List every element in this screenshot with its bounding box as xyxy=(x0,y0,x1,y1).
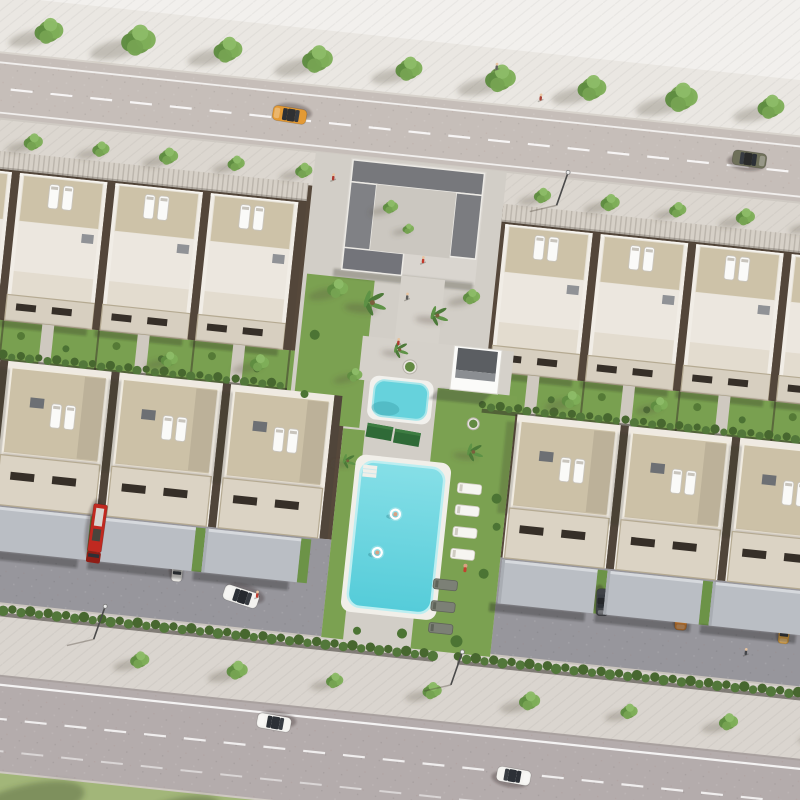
ac-unit xyxy=(762,474,777,485)
ac-unit xyxy=(141,409,156,420)
roof-terrace-tan xyxy=(504,226,588,280)
roof-terrace-tan xyxy=(210,196,294,250)
aerial-render-image xyxy=(0,0,800,800)
pool-steps xyxy=(362,465,377,478)
scene-svg xyxy=(0,0,800,800)
car-roof xyxy=(743,152,753,165)
ac-unit xyxy=(81,234,94,244)
rotated-scene xyxy=(0,0,800,800)
carport xyxy=(0,505,91,569)
pool-water xyxy=(347,460,446,614)
kids-pool xyxy=(366,375,434,425)
ac-unit xyxy=(650,463,665,474)
ac-unit xyxy=(177,244,190,254)
main-pool xyxy=(340,454,452,621)
front-slab xyxy=(504,508,609,568)
ac-unit xyxy=(539,451,554,462)
townhouse-south xyxy=(493,413,629,569)
roof-deck xyxy=(690,292,775,350)
roof-terrace-tan xyxy=(600,236,684,290)
carport xyxy=(489,559,598,623)
roof-terrace-tan xyxy=(19,175,103,229)
carport xyxy=(192,528,301,592)
ac-unit xyxy=(272,254,285,264)
ac-unit xyxy=(662,295,675,305)
front-slab xyxy=(616,520,721,580)
pavilion-roof xyxy=(456,348,498,374)
front-slab xyxy=(727,531,800,591)
townhouse-south xyxy=(604,425,740,581)
roof-deck xyxy=(14,221,99,279)
roof-terrace-tan xyxy=(695,247,779,301)
front-slab xyxy=(107,466,212,526)
front-slab xyxy=(218,478,323,538)
ac-unit xyxy=(30,397,45,408)
front-slab xyxy=(0,455,100,515)
lamp-head xyxy=(460,650,464,654)
lamp-head xyxy=(103,604,107,608)
roof-deck xyxy=(595,282,680,340)
roof-deck xyxy=(205,241,290,299)
townhouse-south xyxy=(95,372,231,528)
roof-deck xyxy=(109,231,194,289)
ac-unit xyxy=(566,285,579,295)
entrance-building xyxy=(333,157,487,291)
townhouse-south xyxy=(0,360,120,516)
entrance-courtyard xyxy=(370,184,456,258)
carport xyxy=(594,570,703,634)
carport xyxy=(700,581,800,645)
truck-cargo-dark xyxy=(92,529,102,542)
townhouse-south xyxy=(715,437,800,593)
sunbather-towel xyxy=(463,567,467,572)
roof-deck xyxy=(499,272,584,330)
townhouse-south xyxy=(206,383,342,539)
lamp-head xyxy=(566,170,570,174)
ac-unit xyxy=(252,421,267,432)
roof-terrace-tan xyxy=(114,185,198,239)
ac-unit xyxy=(757,305,770,315)
